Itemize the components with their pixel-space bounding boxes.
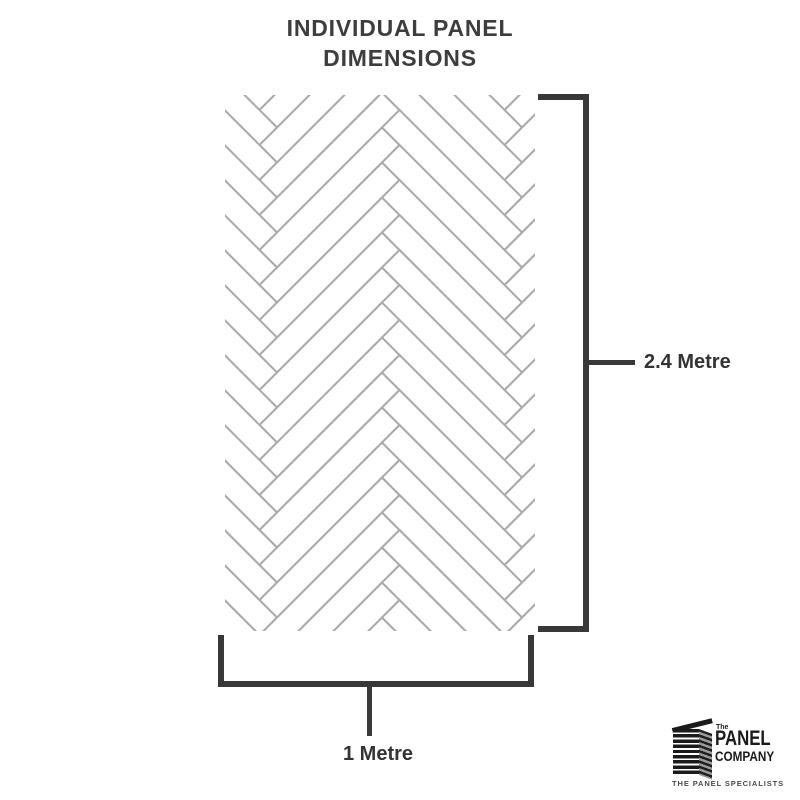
title-line-2: DIMENSIONS bbox=[0, 43, 800, 73]
width-bracket-horizontal-line bbox=[218, 681, 534, 687]
height-bracket-top-tick bbox=[538, 94, 589, 100]
panel-dimensions-infographic: INDIVIDUAL PANEL DIMENSIONS 2.4 Metre 1 … bbox=[0, 0, 800, 800]
width-bracket-left-tick bbox=[218, 635, 224, 687]
page-title: INDIVIDUAL PANEL DIMENSIONS bbox=[0, 13, 800, 73]
panel-company-logo: The PANEL COMPANY THE PANEL SPECIALISTS bbox=[660, 720, 796, 792]
height-bracket-bottom-tick bbox=[538, 626, 589, 632]
width-dimension-label: 1 Metre bbox=[318, 742, 438, 766]
title-line-1: INDIVIDUAL PANEL bbox=[0, 13, 800, 43]
height-bracket-label-tick bbox=[589, 360, 635, 365]
width-bracket-right-tick bbox=[528, 635, 534, 687]
width-bracket-label-stem bbox=[367, 687, 372, 736]
height-dimension-label: 2.4 Metre bbox=[644, 350, 731, 374]
stacked-panels-logo-icon bbox=[673, 722, 714, 776]
logo-panel-text: PANEL bbox=[715, 728, 771, 750]
herringbone-panel-preview bbox=[225, 95, 535, 631]
logo-tagline: THE PANEL SPECIALISTS bbox=[660, 779, 796, 788]
logo-company-text: COMPANY bbox=[715, 750, 774, 764]
